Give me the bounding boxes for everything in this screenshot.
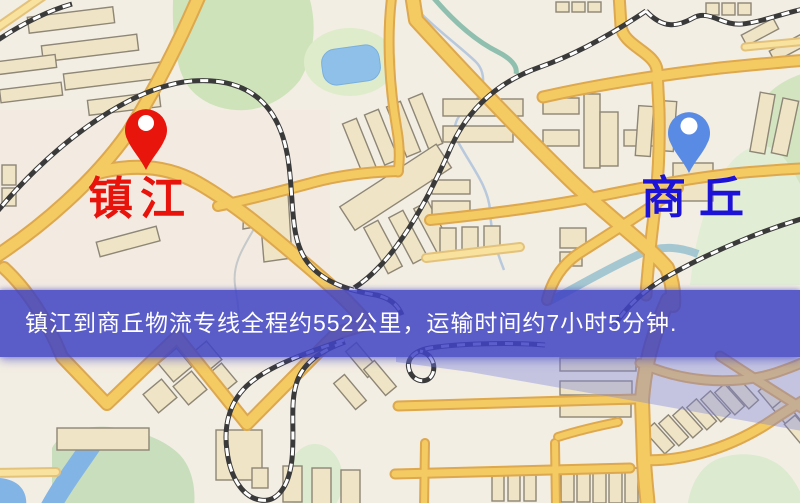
- origin-label: 镇江: [88, 176, 192, 222]
- map-screenshot: 镇江 商丘 镇江到商丘物流专线全程约552公里，运输时间约7小时5分钟.: [0, 0, 800, 503]
- route-info-banner: 镇江到商丘物流专线全程约552公里，运输时间约7小时5分钟.: [0, 290, 800, 357]
- destination-pin-icon: [659, 103, 719, 178]
- pin-hole: [138, 115, 154, 131]
- map-canvas: [0, 0, 800, 503]
- pin-hole: [681, 118, 698, 135]
- origin-pin[interactable]: [116, 100, 176, 175]
- destination-pin[interactable]: [659, 103, 719, 178]
- origin-pin-icon: [116, 100, 176, 175]
- destination-label: 商丘: [641, 175, 757, 221]
